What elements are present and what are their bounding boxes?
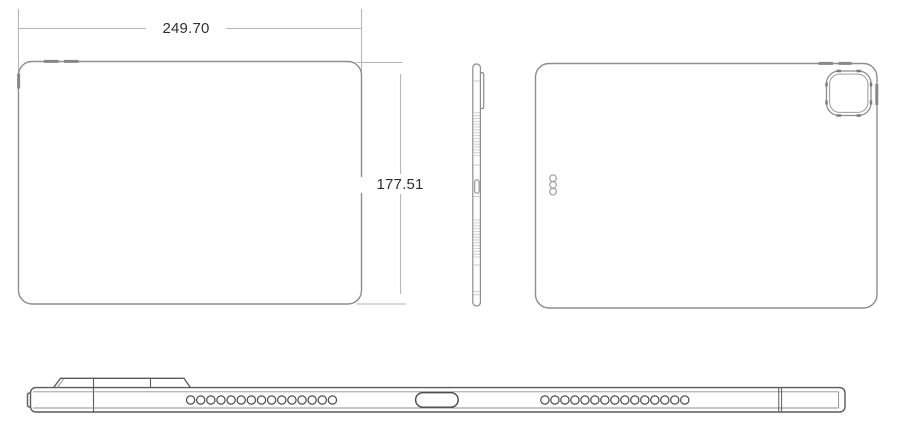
speaker-hole	[308, 396, 316, 404]
side-speaker-dot	[478, 239, 479, 240]
smart-connector-dot	[550, 182, 557, 189]
back-view	[536, 63, 878, 308]
smart-connector-dots	[550, 175, 557, 195]
side-speaker-dot	[478, 132, 479, 133]
side-speaker-dot	[476, 149, 477, 150]
side-speaker-dot	[478, 126, 479, 127]
front-outline	[19, 62, 362, 305]
speaker-hole	[681, 396, 689, 404]
speaker-hole	[661, 396, 669, 404]
side-speaker-dot	[476, 248, 477, 249]
side-speaker-dot	[478, 219, 479, 220]
side-speaker-dot	[474, 248, 475, 249]
side-speaker-dot	[476, 146, 477, 147]
front-view	[19, 61, 362, 304]
side-speaker-dot	[474, 146, 475, 147]
side-speaker-dot	[474, 141, 475, 142]
smart-connector-dot	[550, 188, 557, 195]
side-speaker-dot	[476, 115, 477, 116]
speaker-hole	[621, 396, 629, 404]
speaker-hole	[197, 396, 205, 404]
drawing-svg	[0, 0, 900, 437]
side-speaker-dot	[478, 135, 479, 136]
side-speaker-dot	[474, 124, 475, 125]
side-speaker-dot	[474, 245, 475, 246]
side-speaker-dot	[478, 256, 479, 257]
side-speaker-dot	[478, 248, 479, 249]
side-speaker-dot	[474, 121, 475, 122]
side-speaker-dot	[474, 234, 475, 235]
speaker-hole	[631, 396, 639, 404]
side-speaker-dot	[478, 231, 479, 232]
speaker-hole	[298, 396, 306, 404]
side-speaker-dot	[474, 239, 475, 240]
side-speaker-dot	[474, 135, 475, 136]
speaker-hole	[541, 396, 549, 404]
side-speaker-dot	[478, 118, 479, 119]
speaker-hole	[581, 396, 589, 404]
side-speaker-dot	[476, 231, 477, 232]
side-speaker-dot	[474, 256, 475, 257]
height-dimension-label: 177.51	[360, 177, 440, 193]
side-speaker-dot	[478, 245, 479, 246]
side-speaker-dot	[476, 239, 477, 240]
side-speaker-dot	[474, 144, 475, 145]
side-speaker-dot	[476, 222, 477, 223]
side-speaker-dot	[476, 126, 477, 127]
side-speaker-dot	[476, 242, 477, 243]
side-speaker-dot	[476, 225, 477, 226]
speaker-hole	[571, 396, 579, 404]
back-outline	[536, 64, 878, 309]
side-speaker-dot	[478, 225, 479, 226]
speaker-hole	[207, 396, 215, 404]
side-speaker-dot	[474, 138, 475, 139]
speaker-hole	[601, 396, 609, 404]
side-speaker-dot	[476, 236, 477, 237]
speaker-hole	[591, 396, 599, 404]
side-speaker-dot	[476, 141, 477, 142]
side-speaker-dot	[476, 121, 477, 122]
side-speaker-dot	[476, 144, 477, 145]
side-speaker-dot	[478, 115, 479, 116]
side-speaker-dot	[478, 141, 479, 142]
side-speaker-dot	[478, 152, 479, 153]
side-speaker-dot	[474, 118, 475, 119]
speaker-holes-left	[186, 396, 336, 404]
side-speaker-dot	[478, 149, 479, 150]
side-speaker-dot	[476, 219, 477, 220]
side-speaker-dot	[478, 121, 479, 122]
side-speaker-dot	[476, 245, 477, 246]
side-speaker-dot	[476, 135, 477, 136]
side-speaker-dot	[476, 228, 477, 229]
speaker-hole	[318, 396, 326, 404]
speaker-hole	[671, 396, 679, 404]
speaker-hole	[328, 396, 336, 404]
side-speaker-dot	[478, 124, 479, 125]
side-speaker-dot	[476, 256, 477, 257]
bottom-view	[28, 378, 846, 412]
camera-plateau-inner-slant	[57, 379, 63, 388]
side-speaker-dot	[476, 155, 477, 156]
speaker-hole	[217, 396, 225, 404]
side-speaker-dot	[474, 219, 475, 220]
speaker-hole	[611, 396, 619, 404]
side-speaker-dot	[478, 222, 479, 223]
tablet-dimension-drawing: 249.70 177.51	[0, 0, 900, 437]
side-speaker-dot	[474, 242, 475, 243]
camera-plateau	[54, 378, 191, 387]
side-speaker-dot	[476, 138, 477, 139]
speaker-hole	[561, 396, 569, 404]
side-speaker-dot	[476, 234, 477, 235]
speaker-hole	[651, 396, 659, 404]
side-speaker-dot	[478, 242, 479, 243]
side-speaker-dot	[478, 254, 479, 255]
side-speaker-dot	[474, 228, 475, 229]
speaker-hole	[551, 396, 559, 404]
side-speaker-dot	[474, 132, 475, 133]
side-speaker-dot	[478, 146, 479, 147]
speaker-hole	[288, 396, 296, 404]
side-speaker-dot	[474, 152, 475, 153]
side-speaker-dot	[474, 112, 475, 113]
side-speaker-dot	[478, 144, 479, 145]
side-speaker-dot	[478, 138, 479, 139]
side-speaker-dot	[478, 236, 479, 237]
side-speaker-dot	[476, 129, 477, 130]
side-speaker-dot	[474, 149, 475, 150]
smart-connector-dot	[550, 175, 557, 182]
side-speaker-dot	[474, 129, 475, 130]
side-speaker-dot	[474, 231, 475, 232]
side-speaker-dot	[476, 124, 477, 125]
width-dimension-label: 249.70	[146, 21, 226, 37]
side-speaker-dot	[476, 152, 477, 153]
speaker-hole	[257, 396, 265, 404]
speaker-holes-right	[541, 396, 689, 404]
side-speaker-dot	[474, 115, 475, 116]
side-speaker-dot	[478, 234, 479, 235]
side-speaker-dot	[478, 112, 479, 113]
speaker-hole	[267, 396, 275, 404]
speaker-hole	[186, 396, 194, 404]
side-speaker-dot	[478, 129, 479, 130]
side-speaker-dot	[474, 254, 475, 255]
side-speaker-dot	[474, 155, 475, 156]
side-speaker-dot	[474, 251, 475, 252]
speaker-hole	[247, 396, 255, 404]
side-speaker-dot	[478, 155, 479, 156]
side-speaker-dot	[476, 118, 477, 119]
side-speaker-dot	[474, 236, 475, 237]
side-speaker-dot	[478, 251, 479, 252]
side-speaker-dot	[474, 225, 475, 226]
side-speaker-dot	[476, 254, 477, 255]
side-view	[473, 64, 484, 306]
side-speaker-dot	[474, 126, 475, 127]
side-speaker-dot	[476, 251, 477, 252]
side-speaker-dot	[478, 228, 479, 229]
speaker-hole	[641, 396, 649, 404]
side-speaker-dot	[476, 112, 477, 113]
speaker-hole	[227, 396, 235, 404]
side-speaker-dot	[476, 132, 477, 133]
side-speaker-dot	[474, 222, 475, 223]
speaker-hole	[237, 396, 245, 404]
speaker-hole	[278, 396, 286, 404]
